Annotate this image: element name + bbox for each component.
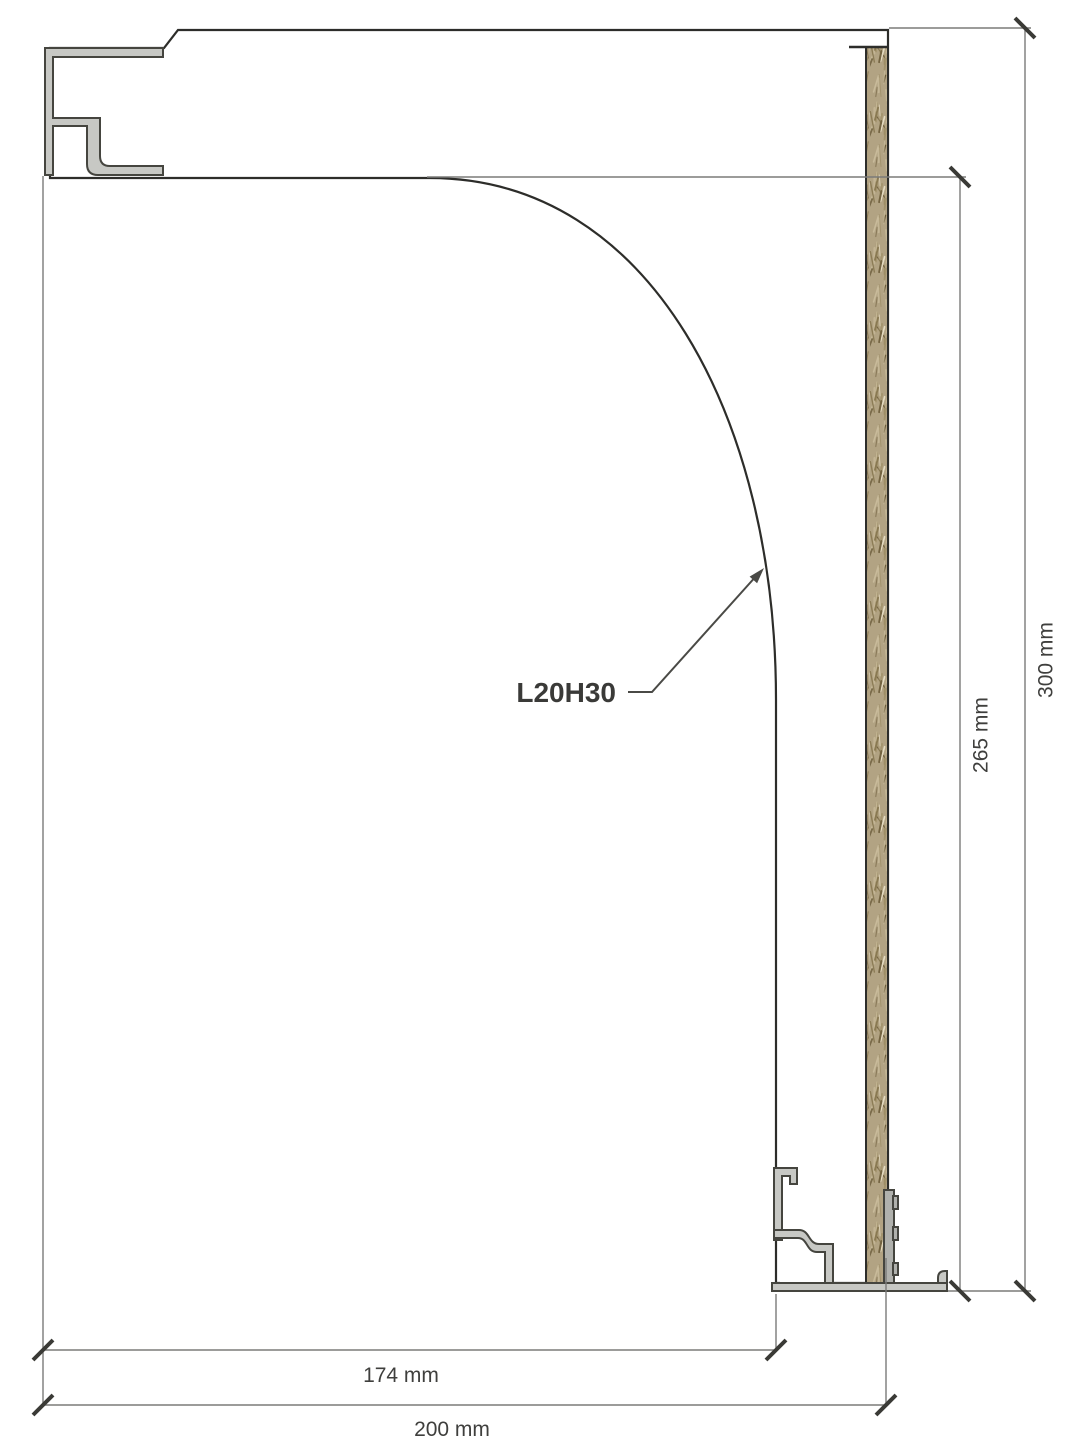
cove-material-section [50,30,888,1283]
woodwool-panel [866,47,887,1283]
callout-label: L20H30 [516,677,616,708]
base-flange [772,1283,947,1291]
clip-tab-1 [893,1196,898,1209]
dim-label-300: 300 mm [1034,622,1057,698]
technical-drawing: L20H30 174 mm 200 mm 265 mm 300 mm [0,0,1066,1440]
dim-label-200: 200 mm [414,1418,490,1440]
base-flange-lip [938,1271,947,1283]
trim-groove [54,124,90,168]
dim-label-174: 174 mm [363,1364,439,1387]
callout-leader-line [628,574,758,692]
clip-tab-2 [893,1227,898,1240]
clip-tab-3 [893,1263,898,1275]
dim-label-265: 265 mm [969,697,992,773]
drawing-canvas: L20H30 174 mm 200 mm 265 mm 300 mm [0,0,1066,1440]
